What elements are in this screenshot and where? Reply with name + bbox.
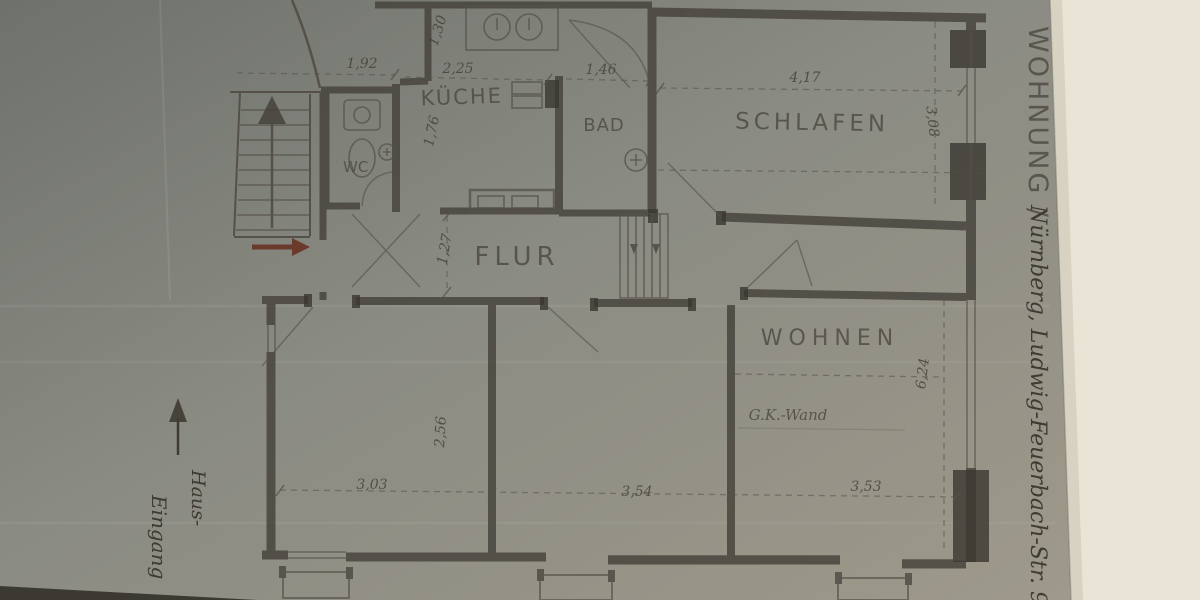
dim-stair-wc-width: 1,92: [346, 56, 377, 72]
annotation-haus-eingang-1: Haus-: [187, 469, 209, 526]
annotation-gk-wand: G.K.-Wand: [749, 406, 828, 424]
dim-wohnen-width: 3,53: [850, 479, 881, 495]
room-label-wc: WC: [343, 158, 368, 176]
room-label-bad: BAD: [583, 115, 625, 136]
dim-zimmer2-width: 3,54: [621, 484, 652, 500]
dim-schlafen-width: 4,17: [788, 70, 820, 86]
radiator-icon: [620, 214, 668, 298]
dim-bad-door-width: 1,46: [585, 62, 616, 78]
scanned-floor-plan-photo: WC KÜCHE BAD SCHLAFEN FLUR WOHNEN G.K.-W…: [0, 0, 1200, 600]
room-label-wohnen: WOHNEN: [761, 326, 899, 351]
dim-kueche-width: 2,25: [441, 61, 473, 77]
room-label-kueche: KÜCHE: [420, 83, 503, 111]
dim-zimmer1-width: 3,03: [356, 477, 387, 493]
side-note-title: WOHNUNG /: [1022, 26, 1053, 220]
annotation-haus-eingang-2: Eingang: [147, 494, 171, 579]
side-note-address: Nürnberg, Ludwig-Feuerbach-Str. 96: [1025, 204, 1050, 600]
dim-schlafen-depth: 3,08: [922, 105, 941, 138]
dim-zimmer1-depth: 2,56: [432, 416, 450, 449]
floor-plan-svg: WC KÜCHE BAD SCHLAFEN FLUR WOHNEN G.K.-W…: [0, 0, 1200, 600]
room-label-flur: FLUR: [474, 242, 559, 272]
room-label-schlafen: SCHLAFEN: [735, 109, 889, 138]
